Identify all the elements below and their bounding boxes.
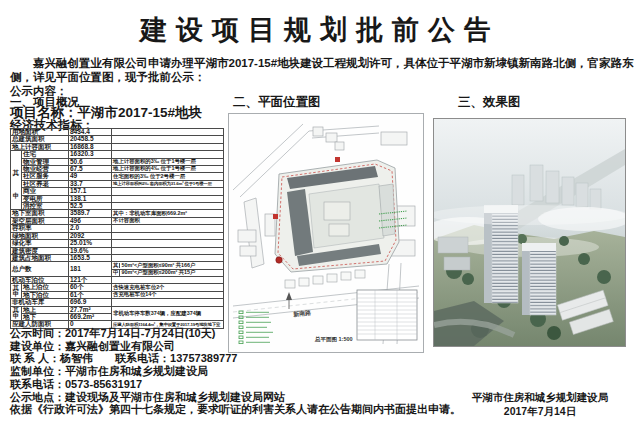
indicator-label: 商业 (22, 188, 69, 195)
indicator-label: 建筑密度 (11, 247, 69, 254)
table-row: 商业157.1 (11, 188, 224, 195)
indicator-value: 2.0 (69, 225, 112, 232)
indicator-label: 社区服务 (22, 173, 69, 180)
indicator-note: 含充电桩车位14个 (112, 291, 224, 298)
indicator-label: 消控室 (22, 203, 69, 210)
indicator-label: 绿地面积 (11, 232, 69, 239)
table-row: 消控室52.5 (11, 203, 224, 210)
indicator-note (112, 188, 224, 195)
indicator-value: 16320.3 (69, 151, 112, 158)
site-plan-figure: 新南路 总平面图 1:500 (228, 113, 424, 353)
table-row: 架空层面积496不计容面积 (11, 217, 224, 224)
indicator-note (112, 247, 224, 254)
indicator-note (112, 225, 224, 232)
signature-date: 2017年7月14日 (445, 405, 635, 419)
render-figure (433, 118, 626, 347)
indicator-note (112, 143, 224, 150)
notice-page: 建设项目规划批前公告 嘉兴融创置业有限公司申请办理平湖市2017-15#地块建设… (0, 0, 640, 427)
indicator-note (112, 195, 224, 202)
indicator-label: 机动车泊位 (11, 276, 69, 283)
indicator-label: 地上 (22, 306, 69, 313)
indicator-note: 地上计容面积的4‰ 位于1号楼一层 (112, 166, 224, 173)
indicator-label: 社区养老 (22, 180, 69, 187)
indicator-note: 住宅面积的3‰ 位于2号楼一层 (112, 173, 224, 180)
table-row: 非机动车库696.9 (11, 299, 224, 306)
indicator-note (112, 254, 224, 261)
footer-line: 公示时间：2017年7月14日-7月24日(10天) (10, 327, 634, 340)
indicator-value: 157.1 (69, 188, 112, 195)
group-cell: 其中 (11, 306, 22, 321)
indicator-label: 用地面积 (11, 129, 69, 136)
indicator-note: 不计容面积 (112, 217, 224, 224)
indicator-value: 8434.4 (69, 129, 112, 136)
indicator-label: 变电所 (22, 195, 69, 202)
indicator-value: 67.5 (69, 166, 112, 173)
signature-block: 平湖市住房和城乡规划建设局 2017年7月14日 (445, 391, 635, 418)
indicator-label: 地下泊位 (22, 291, 69, 298)
footer-line: 监制单位：平湖市住房和城乡规划建设局 (10, 365, 634, 378)
indicator-label: 建筑占地面积 (11, 254, 69, 261)
indicator-value: 2092 (69, 232, 112, 239)
table-row: 总户数181其50m²<户型面积≤90m² 共166户 (11, 262, 224, 269)
indicator-label: 住宅 (22, 151, 69, 158)
indicator-note (112, 240, 224, 247)
indicator-value: 61个 (69, 291, 112, 298)
table-row: 建筑占地面积1653.5 (11, 254, 224, 261)
indicator-value: 138.1 (69, 195, 112, 202)
indicator-label: 绿化率 (11, 240, 69, 247)
indicator-note: 中90m²<户型面积≤200m² 共15户 (112, 269, 224, 276)
site-plan-drawing: 新南路 总平面图 1:500 (229, 114, 423, 352)
indicator-label: 地下 (22, 313, 69, 320)
indicator-note: 非机动车停车数374辆，应配建374辆 (112, 306, 224, 321)
table-row: 其中地上泊位60个含快速充电桩车位2个 (11, 284, 224, 291)
indicator-value: 19.6% (69, 247, 112, 254)
indicator-label: 架空层面积 (11, 217, 69, 224)
indicator-value: 20458.5 (69, 136, 112, 143)
section3-heading: 三、效果图 (458, 94, 521, 111)
indicator-label: 总建筑面积 (11, 136, 69, 143)
table-row: 地上计容面积16868.8 (11, 143, 224, 150)
table-row: 绿化率25.01% (11, 240, 224, 247)
indicator-value: 3589.7 (69, 210, 112, 217)
indicator-label: 物业管理 (22, 158, 69, 165)
table-row: 物业管理50.6地上计容面积的3‰ 位于1号楼一层 (11, 158, 224, 165)
footer-line: 联 系 人：杨智伟 联系电话：13757389777 (10, 352, 634, 365)
indicator-value: 49 (69, 173, 112, 180)
indicator-value: 1653.5 (69, 254, 112, 261)
table-row: 其中地上27.7m²非机动车停车数374辆，应配建374辆 (11, 306, 224, 313)
table-row: 总建筑面积20458.5 (11, 136, 224, 143)
indicator-note (112, 136, 224, 143)
table-row: 地下泊位61个含充电桩车位14个 (11, 291, 224, 298)
indicator-label: 物业经营 (22, 166, 69, 173)
table-row: 绿地面积2092 (11, 232, 224, 239)
table-row: 机动车泊位121个 (11, 276, 224, 283)
indicator-note (112, 129, 224, 136)
indicator-value: 52.5 (69, 203, 112, 210)
indicator-label: 地下室面积 (11, 210, 69, 217)
table-row: 用地面积8434.4 (11, 129, 224, 136)
indicator-label: 地上计容面积 (11, 143, 69, 150)
signature-org: 平湖市住房和城乡规划建设局 (445, 391, 635, 405)
table-row: 容积率2.0 (11, 225, 224, 232)
indicator-note: 含快速充电桩车位2个 (112, 284, 224, 291)
indicator-label: 非机动车库 (11, 299, 69, 306)
table-row: 变电所138.1 (11, 195, 224, 202)
indicator-note (112, 232, 224, 239)
footer-line: 建设单位：嘉兴融创置业有限公司 (10, 340, 634, 353)
indicator-value: 33.7 (69, 180, 112, 187)
indicators-table: 用地面积8434.4 总建筑面积20458.5 地上计容面积16868.8 其中… (10, 128, 224, 329)
group-cell: 其 (113, 263, 120, 269)
indicator-note: 地上计容面积的2‰ 套内面积为31.6m² 位于1号楼一层 (112, 180, 224, 187)
indicator-value: 16868.8 (69, 143, 112, 150)
indicator-note: 其50m²<户型面积≤90m² 共166户 (112, 262, 224, 269)
indicator-value: 60个 (69, 284, 112, 291)
group-cell: 其中 (11, 284, 22, 299)
intro-paragraph: 嘉兴融创置业有限公司申请办理平湖市2017-15#地块建设工程规划许可，具体位于… (10, 56, 634, 84)
indicator-value: 496 (69, 217, 112, 224)
indicator-note: 地上计容面积的3‰ 位于1号楼一层 (112, 158, 224, 165)
group-cell: 其中 (11, 151, 22, 210)
section2-heading: 二、平面位置图 (233, 94, 321, 111)
table-row: 建筑密度19.6% (11, 247, 224, 254)
table-row: 物业经营67.5地上计容面积的4‰ 位于1号楼一层 (11, 166, 224, 173)
page-title: 建设项目规划批前公告 (0, 12, 640, 48)
main-tower-2 (522, 243, 556, 315)
table-row: 社区服务49住宅面积的3‰ 位于2号楼一层 (11, 173, 224, 180)
indicator-value: 50.6 (69, 158, 112, 165)
indicator-value: 669.2m² (69, 313, 112, 320)
indicator-note (112, 203, 224, 210)
indicator-note (112, 151, 224, 158)
indicator-note: 其中：非机动车库面积669.2m² (112, 210, 224, 217)
indicator-value: 181 (69, 262, 112, 277)
indicator-value: 25.01% (69, 240, 112, 247)
render-image (434, 119, 625, 346)
footer-line: 联系电话：0573-85631917 (10, 378, 634, 391)
indicator-value: 696.9 (69, 299, 112, 306)
table-row: 社区养老33.7地上计容面积的2‰ 套内面积为31.6m² 位于1号楼一层 (11, 180, 224, 187)
indicator-note (112, 276, 224, 283)
indicator-label: 地上泊位 (22, 284, 69, 291)
indicator-value: 121个 (69, 276, 112, 283)
indicator-note (112, 299, 224, 306)
indicator-value: 27.7m² (69, 306, 112, 313)
group-cell: 中 (113, 270, 120, 276)
indicator-label: 容积率 (11, 225, 69, 232)
indicator-label: 总户数 (11, 262, 69, 277)
table-row: 其中住宅16320.3 (11, 151, 224, 158)
table-row: 地下室面积3589.7其中：非机动车库面积669.2m² (11, 210, 224, 217)
